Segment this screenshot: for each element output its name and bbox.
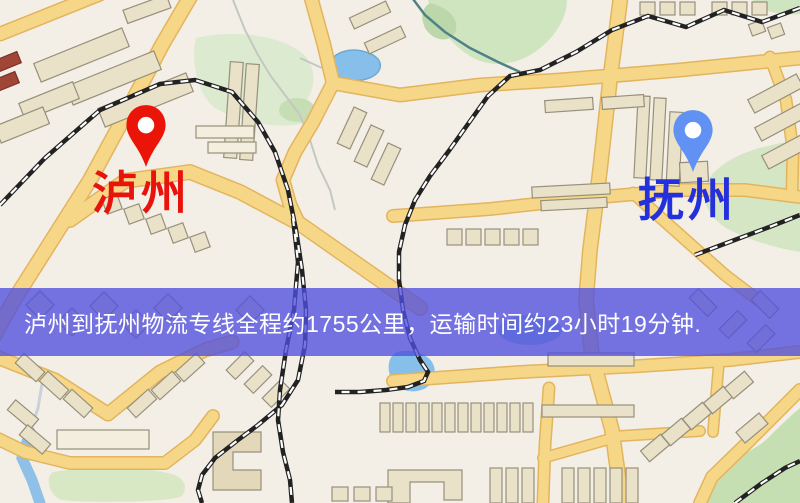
origin-pin[interactable] bbox=[123, 103, 169, 169]
route-banner: 泸州到抚州物流专线全程约1755公里，运输时间约23小时19分钟. bbox=[0, 288, 800, 356]
map-screenshot: 泸州 抚州 泸州到抚州物流专线全程约1755公里，运输时间约23小时19分钟. bbox=[0, 0, 800, 503]
destination-label: 抚州 bbox=[638, 177, 736, 225]
destination-pin[interactable] bbox=[670, 108, 716, 174]
blue-location-pin-icon bbox=[670, 108, 716, 174]
map-canvas[interactable] bbox=[0, 0, 800, 503]
route-banner-text: 泸州到抚州物流专线全程约1755公里，运输时间约23小时19分钟. bbox=[24, 305, 701, 339]
origin-label: 泸州 bbox=[92, 170, 190, 218]
red-location-pin-icon bbox=[123, 103, 169, 169]
